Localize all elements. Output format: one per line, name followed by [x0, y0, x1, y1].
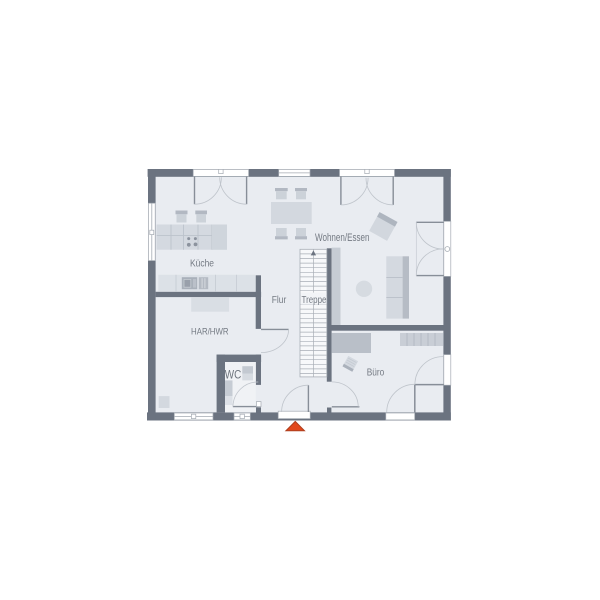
svg-text:Büro: Büro: [367, 367, 385, 378]
svg-text:Treppe: Treppe: [302, 295, 327, 306]
svg-text:Flur: Flur: [272, 295, 287, 306]
svg-text:HAR/HWR: HAR/HWR: [191, 327, 229, 337]
svg-text:Wohnen/Essen: Wohnen/Essen: [315, 232, 370, 244]
svg-text:WC: WC: [225, 370, 242, 382]
svg-text:Küche: Küche: [190, 258, 214, 269]
